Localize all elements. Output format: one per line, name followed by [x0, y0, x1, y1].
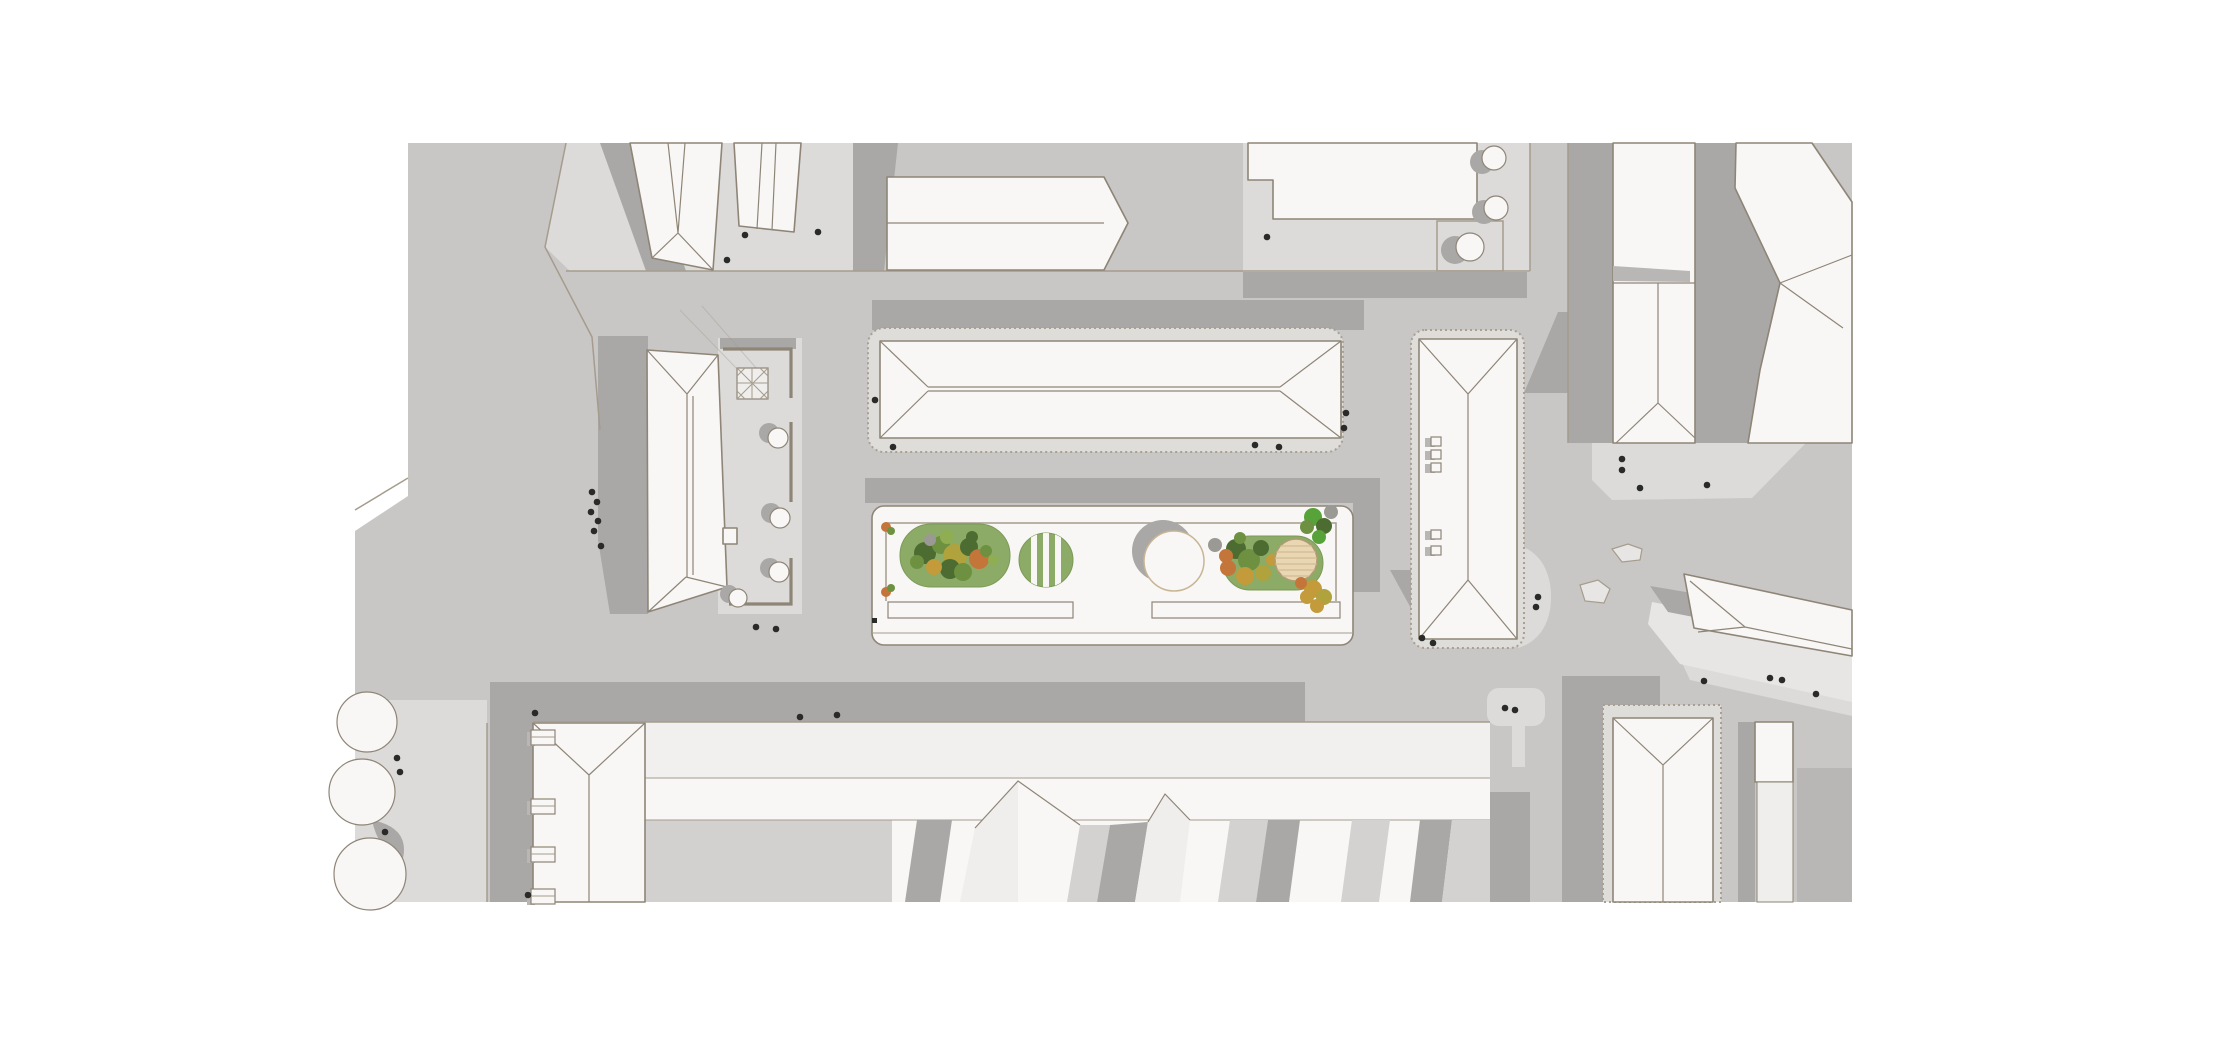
- rooftop-vent: [1431, 450, 1441, 459]
- shadow-right-of-plaza: [1353, 503, 1380, 592]
- pedestrian-dot: [797, 714, 804, 721]
- east-hipped-bar: [1411, 330, 1524, 648]
- small-plaza-stem: [1512, 726, 1525, 767]
- pedestrian-dot: [589, 489, 596, 496]
- pedestrian-dot: [1619, 467, 1626, 474]
- tree-canopy: [1234, 532, 1246, 544]
- north-central-bar: [868, 328, 1343, 452]
- pedestrian-dot: [525, 892, 532, 899]
- pedestrian-dot: [773, 626, 780, 633]
- shadow-above-north-bar: [872, 300, 1364, 330]
- west-building-entry-bump: [723, 528, 737, 544]
- pedestrian-dot: [588, 509, 595, 516]
- nw-slab-b-roof: [734, 143, 801, 232]
- pedestrian-dot: [1343, 410, 1350, 417]
- north-bar-roof: [880, 341, 1341, 438]
- shadow-above-plaza: [865, 478, 1380, 503]
- tree-canopy: [1456, 233, 1484, 261]
- south-block: [527, 722, 1490, 905]
- shrub: [1300, 520, 1314, 534]
- pedestrian-dot: [1430, 640, 1437, 647]
- tree-canopy: [1484, 196, 1508, 220]
- pedestrian-dot: [1276, 444, 1283, 451]
- pedestrian-dot: [753, 624, 760, 631]
- pedestrian-dot: [594, 499, 601, 506]
- south-block-upper-slope: [533, 722, 1490, 778]
- shadow-roofscape-east: [1490, 792, 1530, 902]
- pedestrian-dot: [1701, 678, 1708, 685]
- pedestrian-dot: [1767, 675, 1774, 682]
- tree-canopy: [910, 555, 924, 569]
- tree-canopy: [966, 531, 978, 543]
- rooftop-vent: [1431, 530, 1441, 539]
- southeast-towers: [1603, 705, 1793, 902]
- tree-canopy: [1208, 538, 1222, 552]
- shrub: [887, 584, 895, 592]
- shrub: [1310, 599, 1324, 613]
- pedestrian-dot: [1264, 234, 1271, 241]
- shadow-narrow-slab: [1738, 722, 1755, 902]
- pedestrian-dot: [1637, 485, 1644, 492]
- shrub: [887, 527, 895, 535]
- tree-canopy: [980, 545, 992, 557]
- pedestrian-dot: [742, 232, 749, 239]
- shadow-under-ne-courtyard: [1243, 272, 1527, 298]
- fe-tall-slab: [1613, 143, 1695, 443]
- glass-lattice-atrium: [737, 368, 768, 399]
- pedestrian-dot: [532, 710, 539, 717]
- tree-canopy: [926, 559, 942, 575]
- pedestrian-dot: [1341, 425, 1348, 432]
- pedestrian-dot: [1512, 707, 1519, 714]
- tree-canopy: [988, 555, 998, 565]
- se-narrow-slab-lower: [1757, 782, 1793, 902]
- tree-canopy: [1255, 565, 1271, 581]
- atrium-truss-lines: [737, 368, 768, 399]
- pedestrian-dot: [890, 444, 897, 451]
- cafe-table: [768, 428, 788, 448]
- pedestrian-dot: [815, 229, 822, 236]
- ne-block-roof: [1248, 143, 1477, 219]
- shadow-west-building: [598, 336, 648, 614]
- shrub: [1295, 577, 1307, 589]
- tree-canopy: [1253, 540, 1269, 556]
- rooftop-vent: [1431, 463, 1441, 472]
- south-inner-courtyard: [645, 820, 892, 902]
- plaza-marker-square: [872, 618, 877, 623]
- lawn-stripe: [1043, 530, 1049, 592]
- street-tree-canopy: [334, 838, 406, 910]
- rooftop-vent: [1431, 546, 1441, 555]
- pedestrian-dot: [834, 712, 841, 719]
- cafe-table: [729, 589, 747, 607]
- shadow-far-se: [1797, 768, 1852, 902]
- pedestrian-dot: [397, 769, 404, 776]
- pedestrian-dot: [1252, 442, 1259, 449]
- site-plan-rendering: [0, 0, 2220, 1037]
- tree-canopy: [924, 534, 936, 546]
- pedestrian-dot: [1419, 635, 1426, 642]
- cafe-table: [770, 508, 790, 528]
- tree-canopy: [1219, 549, 1233, 563]
- pedestrian-dot: [1619, 456, 1626, 463]
- tree-canopy: [954, 563, 972, 581]
- pedestrian-dot: [1533, 604, 1540, 611]
- lawn-stripe: [1031, 530, 1037, 592]
- pavilion-canopy: [1144, 531, 1204, 591]
- pedestrian-dot: [1813, 691, 1820, 698]
- pedestrian-dot: [591, 528, 598, 535]
- pedestrian-dot: [598, 543, 605, 550]
- cafe-table: [769, 562, 789, 582]
- se-narrow-slab-upper: [1755, 722, 1793, 782]
- shadow-east-street: [1568, 143, 1613, 443]
- shrub: [1324, 505, 1338, 519]
- tree-canopy: [940, 530, 954, 544]
- north-hipped-slab: [887, 177, 1128, 270]
- shrub: [1312, 530, 1326, 544]
- pedestrian-dot: [1779, 677, 1786, 684]
- rooftop-vent: [1431, 437, 1441, 446]
- street-tree-canopy: [337, 692, 397, 752]
- pedestrian-dot: [382, 829, 389, 836]
- bench-west: [888, 602, 1073, 618]
- tree-canopy: [1236, 567, 1254, 585]
- pedestrian-dot: [1704, 482, 1711, 489]
- pedestrian-dot: [595, 518, 602, 525]
- pedestrian-dot: [1502, 705, 1509, 712]
- central-pocket-plaza: [872, 505, 1353, 645]
- pedestrian-dot: [724, 257, 731, 264]
- pedestrian-dot: [1535, 594, 1542, 601]
- pedestrian-dot: [394, 755, 401, 762]
- pedestrian-dot: [872, 397, 879, 404]
- lawn-stripe: [1055, 530, 1061, 592]
- street-tree-canopy: [329, 759, 395, 825]
- tree-canopy: [1482, 146, 1506, 170]
